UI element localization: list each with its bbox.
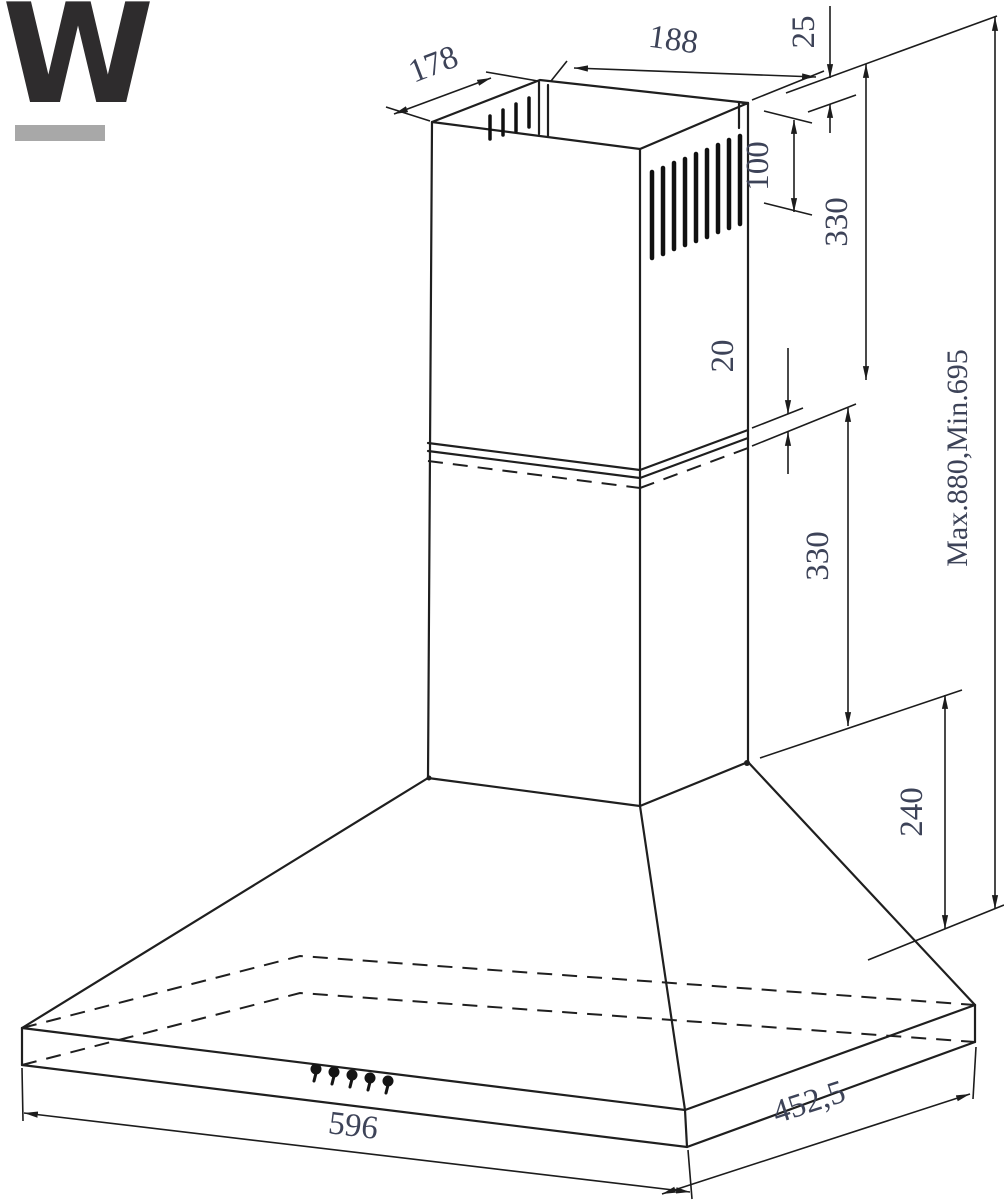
dimension-ceiling-gap-25: 25 [786,6,856,133]
dim-label-20: 20 [705,340,741,373]
dim-label-330-upper: 330 [819,197,855,247]
knob-icon [311,1064,322,1082]
dimension-hood-height-240: 240 [760,690,1004,960]
dimension-total-height: Max.880,Min.695 [941,17,995,909]
dimension-vent-height-100: 100 [740,111,812,215]
dim-label-178: 178 [404,39,463,90]
dimension-hood-width-596: 596 [22,1068,692,1199]
technical-drawing-page: W [0,0,1004,1200]
dim-label-total-height: Max.880,Min.695 [941,349,974,567]
dimension-lower-chimney-330: 330 [800,408,848,726]
vent-slots-right-face [652,136,740,258]
knob-icon [383,1076,394,1094]
dimension-duct-width-188: 188 [551,19,824,100]
dimension-hood-depth-452-5: 452,5 [662,1047,976,1194]
dim-label-452-5: 452,5 [768,1074,850,1131]
knob-icon [329,1067,340,1085]
hood-base-slab [22,956,975,1147]
knob-icon [365,1073,376,1091]
dim-label-100: 100 [740,141,776,191]
chimney-duct-outline [428,80,748,806]
dim-label-330-lower: 330 [800,531,836,581]
dimension-upper-chimney-330: 330 [819,64,866,380]
dim-label-188: 188 [646,19,700,62]
knob-icon [347,1070,358,1088]
dim-label-25: 25 [786,16,822,49]
dim-label-240: 240 [894,787,930,837]
dim-label-596: 596 [326,1105,380,1147]
cooker-hood-dimension-drawing: 178 188 25 100 330 [0,0,1004,1200]
dimension-overlap-20: 20 [705,340,856,475]
